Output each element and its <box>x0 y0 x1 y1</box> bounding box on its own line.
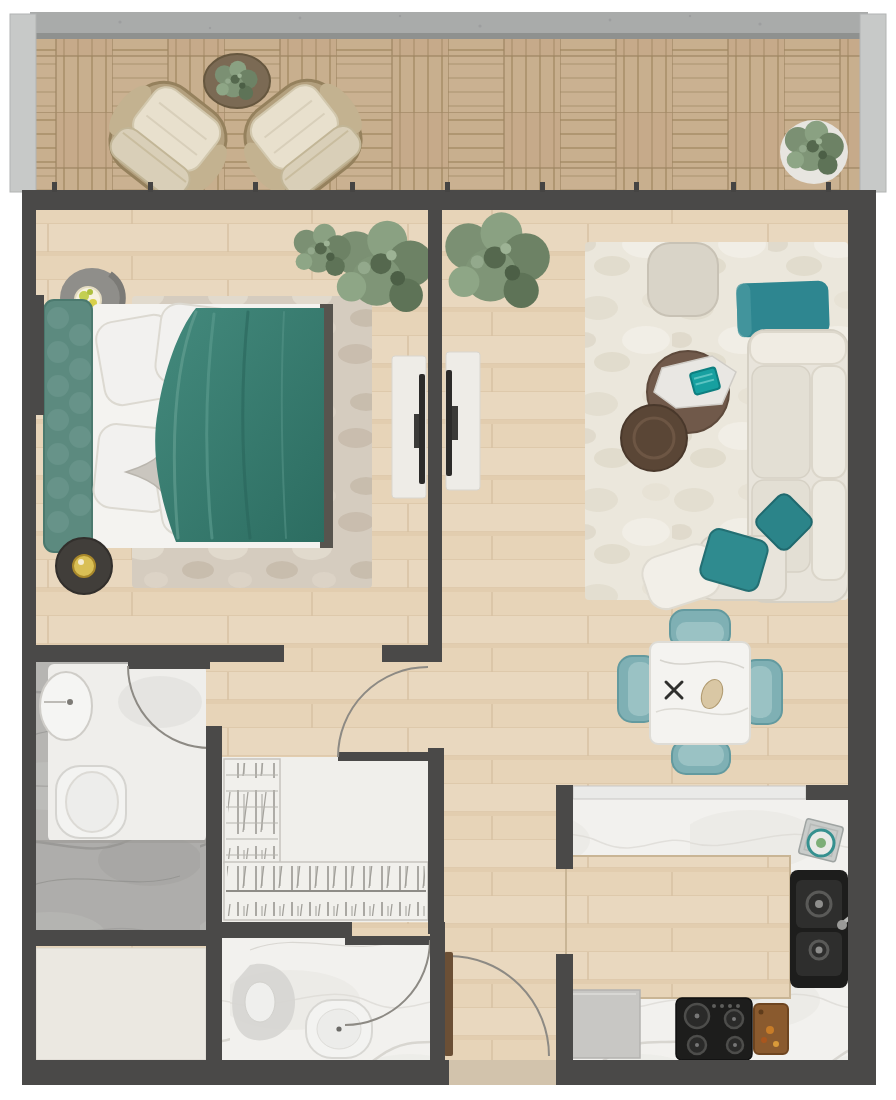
teal-duvet <box>155 308 324 542</box>
kitchen-island-wood <box>566 856 790 998</box>
dining-table <box>650 642 750 744</box>
closet-hanging-rail <box>224 862 428 920</box>
gray-appliance <box>566 990 640 1058</box>
balcony-potted-plant <box>780 120 848 184</box>
living-tv <box>446 370 452 476</box>
bed <box>44 300 333 552</box>
pouf <box>648 243 718 316</box>
living-tv-console <box>446 352 480 490</box>
bedroom-tv <box>419 374 425 484</box>
guest-door-leaf <box>345 936 430 945</box>
wall-notch <box>36 295 44 415</box>
floor-plan-page <box>0 0 896 1100</box>
cutting-board <box>754 1004 788 1054</box>
balcony-side-table <box>204 54 270 108</box>
ensuite-toilet <box>56 766 126 838</box>
window-wall <box>22 190 876 210</box>
closet-door-leaf <box>338 752 428 761</box>
floor-plan-canvas <box>0 0 896 1100</box>
entry-door-leaf <box>444 952 453 1056</box>
bedroom-tv-console <box>392 356 426 498</box>
shower-tint <box>36 840 206 930</box>
guest-toilet <box>306 1000 372 1058</box>
balcony-rail-edge <box>30 33 868 39</box>
shower-divider <box>36 840 206 843</box>
balcony-glass-left <box>10 14 36 192</box>
side-table-round <box>621 405 687 471</box>
kitchen-pass-counter <box>573 786 806 799</box>
closet-shelf-unit <box>224 759 280 863</box>
lamp-gold <box>73 555 95 577</box>
sofa-armrest <box>750 332 846 364</box>
storage-floor <box>36 948 206 1060</box>
entry-threshold <box>449 1060 556 1085</box>
bedroom-divider-wall <box>428 210 442 662</box>
nightstand-bottom <box>56 538 112 594</box>
ensuite-sink <box>40 672 92 740</box>
gas-hob <box>676 998 752 1060</box>
balcony-glass-right <box>860 14 886 192</box>
